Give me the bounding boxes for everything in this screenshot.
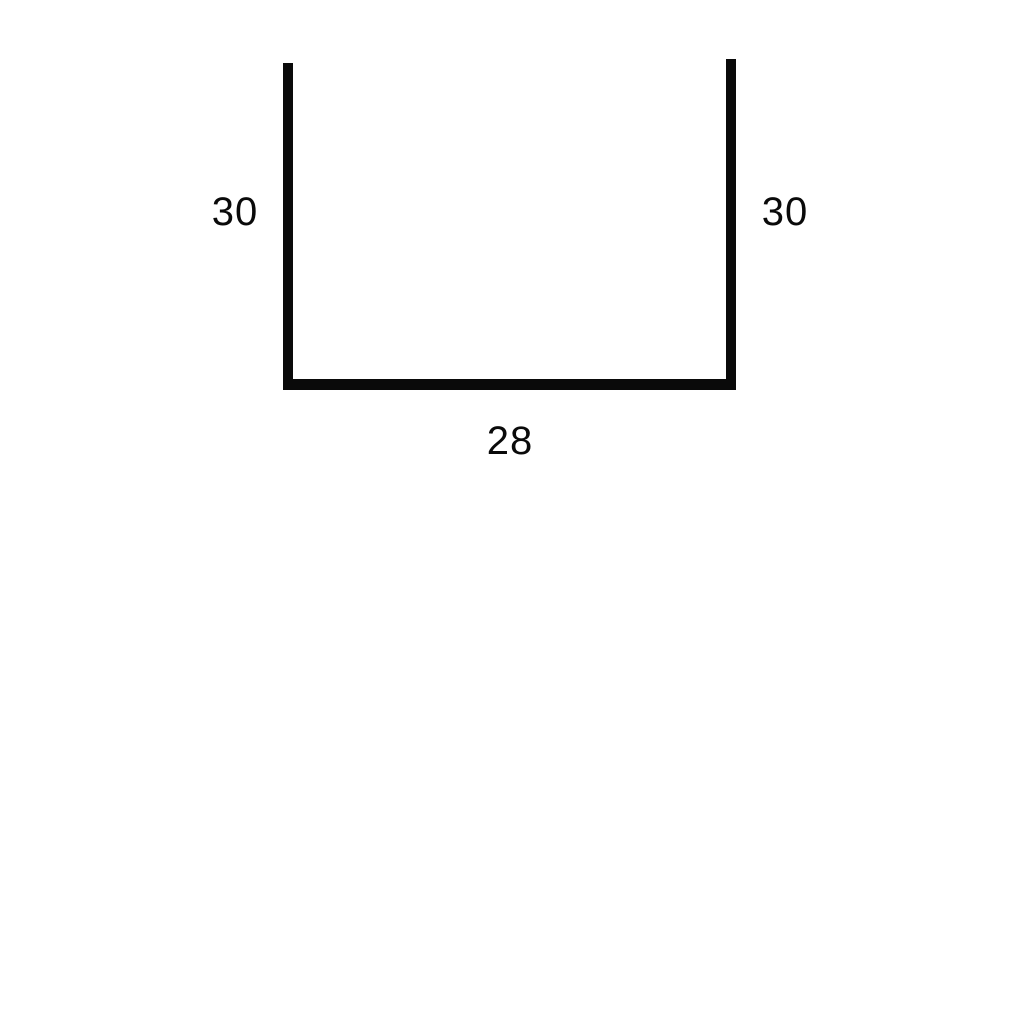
- u-shape-diagram: 30 30 28: [0, 0, 1024, 1024]
- bottom-dimension-label: 28: [487, 419, 534, 463]
- left-dimension-label: 30: [212, 190, 259, 234]
- diagram-stage: 30 30 28: [0, 0, 1024, 1024]
- right-dimension-label: 30: [762, 190, 809, 234]
